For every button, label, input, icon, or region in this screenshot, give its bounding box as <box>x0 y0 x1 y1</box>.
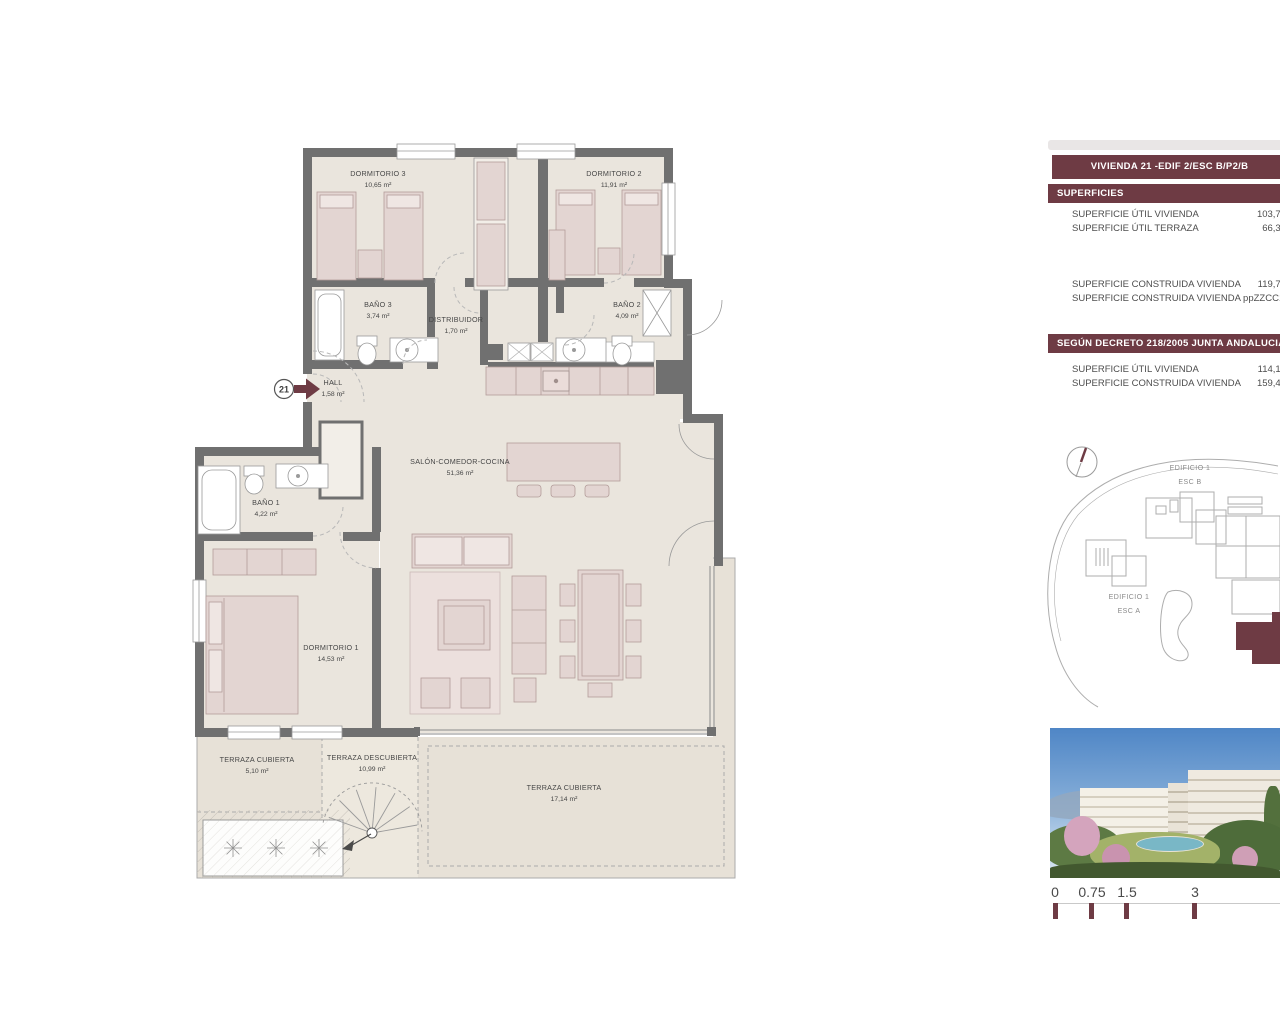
surface-label: SUPERFICIE CONSTRUIDA VIVIENDA ppZZCC <box>1072 293 1279 306</box>
scale-tick <box>1124 903 1129 919</box>
room-area: 4,09 m² <box>615 313 639 320</box>
room-label: DORMITORIO 2 <box>586 169 642 178</box>
room-label: BAÑO 2 <box>613 300 641 309</box>
room-label: TERRAZA CUBIERTA <box>527 783 602 792</box>
surface-label: SUPERFICIE CONSTRUIDA VIVIENDA <box>1072 378 1241 391</box>
north-compass-icon <box>1067 447 1097 477</box>
planter-bed <box>197 810 350 878</box>
highlighted-unit <box>1236 612 1280 664</box>
floor-plan: 21 DORMITORIO 3 10,65 m² DORMITORIO 2 11… <box>190 135 745 910</box>
scale-bar: 0 0.75 1.5 3 <box>1048 884 1280 924</box>
room-label: DORMITORIO 1 <box>303 643 359 652</box>
entrance-number: 21 <box>279 385 289 395</box>
surface-label: SUPERFICIE CONSTRUIDA VIVIENDA <box>1072 279 1241 292</box>
surface-row: SUPERFICIE ÚTIL VIVIENDA 103,78 <box>1072 209 1280 222</box>
scale-number: 1.5 <box>1113 884 1141 900</box>
room-label: TERRAZA DESCUBIERTA <box>327 753 417 762</box>
blossom-tree <box>1064 816 1100 856</box>
room-area: 51,36 m² <box>447 470 475 477</box>
room-area: 11,91 m² <box>601 182 628 189</box>
surface-label: SUPERFICIE ÚTIL TERRAZA <box>1072 223 1199 236</box>
siteplan-label-edificio1-left: EDIFICIO 1 <box>1109 594 1150 601</box>
room-label: DISTRIBUIDOR <box>429 315 484 324</box>
surface-row: SUPERFICIE CONSTRUIDA VIVIENDA ppZZCC 14… <box>1072 293 1280 306</box>
room-area: 5,10 m² <box>245 768 269 775</box>
bushes <box>1050 862 1280 878</box>
surface-value: 103,78 <box>1257 209 1280 222</box>
room-label: TERRAZA CUBIERTA <box>220 755 295 764</box>
room-label: BAÑO 1 <box>252 498 280 507</box>
site-plan: EDIFICIO 1 ESC B EDIFICIO 1 ESC A <box>1045 438 1280 708</box>
room-label: DORMITORIO 3 <box>350 169 406 178</box>
scale-number: 3 <box>1187 884 1203 900</box>
project-rendering <box>1050 728 1280 878</box>
room-label: HALL <box>324 378 343 387</box>
scale-line <box>1053 903 1280 904</box>
room-area: 17,14 m² <box>551 796 579 803</box>
room-area: 3,74 m² <box>366 313 390 320</box>
surface-row: SUPERFICIE CONSTRUIDA VIVIENDA 119,74 <box>1072 279 1280 292</box>
scale-number: 0 <box>1049 884 1061 900</box>
surface-label: SUPERFICIE ÚTIL VIVIENDA <box>1072 364 1199 377</box>
plan-sheet: 21 DORMITORIO 3 10,65 m² DORMITORIO 2 11… <box>0 0 1280 1024</box>
room-label: SALÓN-COMEDOR-COCINA <box>410 457 510 466</box>
unit-title-bar: VIVIENDA 21 -EDIF 2/ESC B/P2/B <box>1052 155 1280 179</box>
surface-label: SUPERFICIE ÚTIL VIVIENDA <box>1072 209 1199 222</box>
room-area: 4,22 m² <box>254 511 278 518</box>
panel-top-bar <box>1048 140 1280 150</box>
surface-value: 114,16 <box>1258 364 1280 377</box>
surface-row: SUPERFICIE ÚTIL VIVIENDA 114,16 <box>1072 364 1280 377</box>
surface-row: SUPERFICIE ÚTIL TERRAZA 66,36 <box>1072 223 1280 236</box>
surface-value: 159,48 <box>1257 378 1280 391</box>
superficies-header: SUPERFICIES <box>1048 184 1280 203</box>
surface-value: 66,36 <box>1262 223 1280 236</box>
siteplan-label-esc-a: ESC A <box>1118 608 1141 615</box>
scale-tick <box>1089 903 1094 919</box>
scale-tick <box>1053 903 1058 919</box>
scale-number: 0.75 <box>1075 884 1109 900</box>
siteplan-label-edificio1-top: EDIFICIO 1 <box>1170 465 1211 472</box>
room-label: BAÑO 3 <box>364 300 392 309</box>
room-area: 1,58 m² <box>321 391 345 398</box>
decreto-header: SEGÚN DECRETO 218/2005 JUNTA ANDALUCIA <box>1048 334 1280 353</box>
surface-value: 119,74 <box>1258 279 1280 292</box>
room-area: 10,65 m² <box>365 182 393 189</box>
room-area: 1,70 m² <box>444 328 468 335</box>
room-area: 10,99 m² <box>359 766 387 773</box>
surface-row: SUPERFICIE CONSTRUIDA VIVIENDA 159,48 <box>1072 378 1280 391</box>
scale-tick <box>1192 903 1197 919</box>
siteplan-label-esc-b: ESC B <box>1178 479 1201 486</box>
pool <box>1136 836 1204 852</box>
room-area: 14,53 m² <box>318 656 346 663</box>
